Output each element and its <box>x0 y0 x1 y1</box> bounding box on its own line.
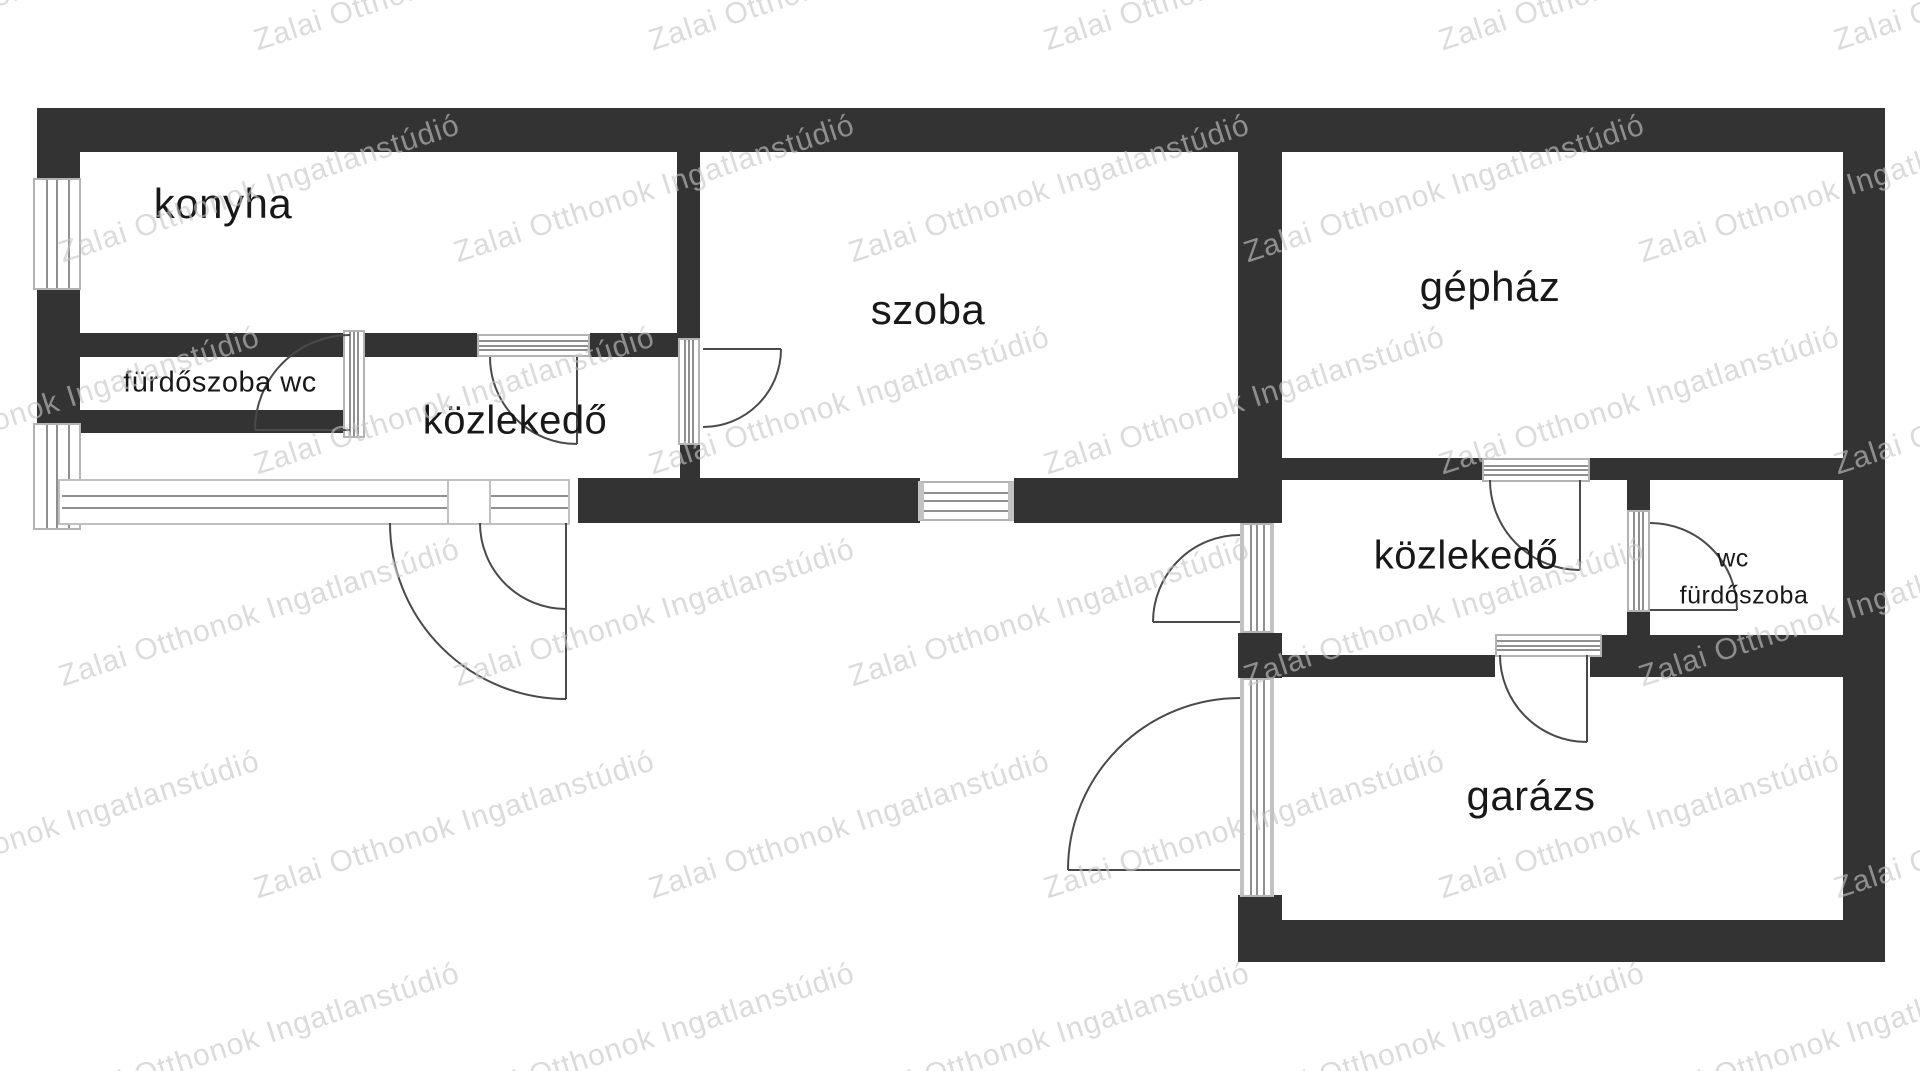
wall-garage-top-west <box>1282 655 1495 677</box>
wall-szoba-bottom-west <box>578 478 920 523</box>
watermark-text: Zalai Otthonok Ingatlanstúdió <box>250 744 659 906</box>
wall-garage-bottom <box>1238 920 1885 962</box>
wall-wcfurdo-west-lower <box>1627 610 1650 635</box>
room-label-kozlekedo-2: közlekedő <box>1374 534 1559 579</box>
watermark-text: Zalai Otthonok Ingatlanstúdió <box>845 956 1254 1071</box>
band-window <box>62 483 447 521</box>
entrance-door-arc <box>390 523 566 699</box>
room-label-furdoszoba-right: fürdőszoba <box>1680 582 1809 611</box>
watermark-text: Zalai Otthonok Ingatlanstúdió <box>1635 956 1920 1071</box>
wall-center-lower <box>1238 895 1282 962</box>
kozlekedo2-door-arc <box>1153 535 1240 622</box>
porch-window-band <box>58 479 570 525</box>
wall-furdoszoba-bottom <box>80 410 363 433</box>
room-label-furdoszoba-wc: fürdőszoba wc <box>123 367 317 400</box>
watermark-text: Zalai Otthonok Ingatlanstúdió <box>55 956 464 1071</box>
floor-plan: konyha fürdőszoba wc közlekedő szoba gép… <box>0 0 1920 1071</box>
wall-left-upper <box>37 108 80 178</box>
room-label-kozlekedo-1: közlekedő <box>423 399 608 444</box>
wcfurdo-door-opening <box>1627 510 1650 612</box>
watermark-text: Zalai Otthonok Ingatlanstúdió <box>0 0 264 58</box>
watermark-text: Zalai Otthonok Ingatlanstúdió <box>55 532 464 694</box>
wall-szoba-door-stub <box>680 445 700 478</box>
watermark-text: Zalai Otthonok Ingatlanstúdió <box>845 532 1254 694</box>
wall-left-mid <box>37 290 80 423</box>
wall-konyha-szoba-divider <box>677 152 700 357</box>
watermark-text: Zalai Otthonok Ingatlanstúdió <box>1830 0 1920 58</box>
wall-center-stub <box>1238 633 1282 678</box>
watermark-text: Zalai Otthonok Ingatlanstúdió <box>450 956 859 1071</box>
konyha-door-opening <box>477 334 590 357</box>
garage-north-door-arc <box>1500 655 1587 742</box>
room-label-gephaz: gépház <box>1420 263 1561 311</box>
room-label-garazs: garázs <box>1466 772 1595 820</box>
room-label-wc: wc <box>1717 545 1749 574</box>
szoba-door-arc <box>703 349 781 427</box>
room-label-konyha: konyha <box>154 180 292 228</box>
watermark-text: Zalai Otthonok Ingatlanstúdió <box>450 532 859 694</box>
wall-right-outer <box>1843 108 1885 962</box>
gephaz-door-opening <box>1482 458 1590 482</box>
szoba-window <box>918 481 1014 521</box>
watermark-text: Zalai Otthonok Ingatlanstúdió <box>1040 0 1449 58</box>
band-post <box>447 481 491 523</box>
wall-center-vertical <box>1238 152 1282 523</box>
watermark-text: Zalai Otthonok Ingatlanstúdió <box>645 0 1054 58</box>
room-label-szoba: szoba <box>871 286 986 334</box>
furdoszoba-door-opening <box>343 330 365 438</box>
wall-konyha-bottom-east <box>590 333 677 357</box>
watermark-text: Zalai Otthonok Ingatlanstúdió <box>645 320 1054 482</box>
wall-konyha-bottom-west <box>80 333 347 357</box>
wall-gephaz-bottom-west <box>1282 458 1482 480</box>
garage-west-door-opening <box>1240 678 1274 897</box>
band-entrance-door <box>491 483 568 521</box>
wall-wcfurdo-west-upper <box>1627 480 1650 512</box>
watermark-text: Zalai Otthonok Ingatlanstúdió <box>250 0 659 58</box>
watermark-text: Zalai Otthonok Ingatlanstúdió <box>1435 744 1844 906</box>
kozlekedo2-west-door-opening <box>1240 523 1274 633</box>
wall-konyha-bottom-mid <box>363 333 477 357</box>
wall-gephaz-bottom-east <box>1650 458 1843 480</box>
watermark-text: Zalai Otthonok Ingatlanstúdió <box>1240 956 1649 1071</box>
szoba-door-opening <box>678 338 700 445</box>
watermark-text: Zalai Otthonok Ingatlanstúdió <box>1435 0 1844 58</box>
watermark-text: Zalai Otthonok Ingatlanstúdió <box>0 744 264 906</box>
wall-garage-top-east <box>1590 635 1843 677</box>
wall-szoba-bottom-east <box>1014 478 1240 523</box>
garage-north-door-opening <box>1495 634 1602 657</box>
wall-gephaz-bottom-mid <box>1590 458 1650 480</box>
garage-west-door-arc <box>1068 698 1240 870</box>
watermark-text: Zalai Otthonok Ingatlanstúdió <box>645 744 1054 906</box>
konyha-window <box>33 178 81 290</box>
wall-top <box>37 108 1885 152</box>
